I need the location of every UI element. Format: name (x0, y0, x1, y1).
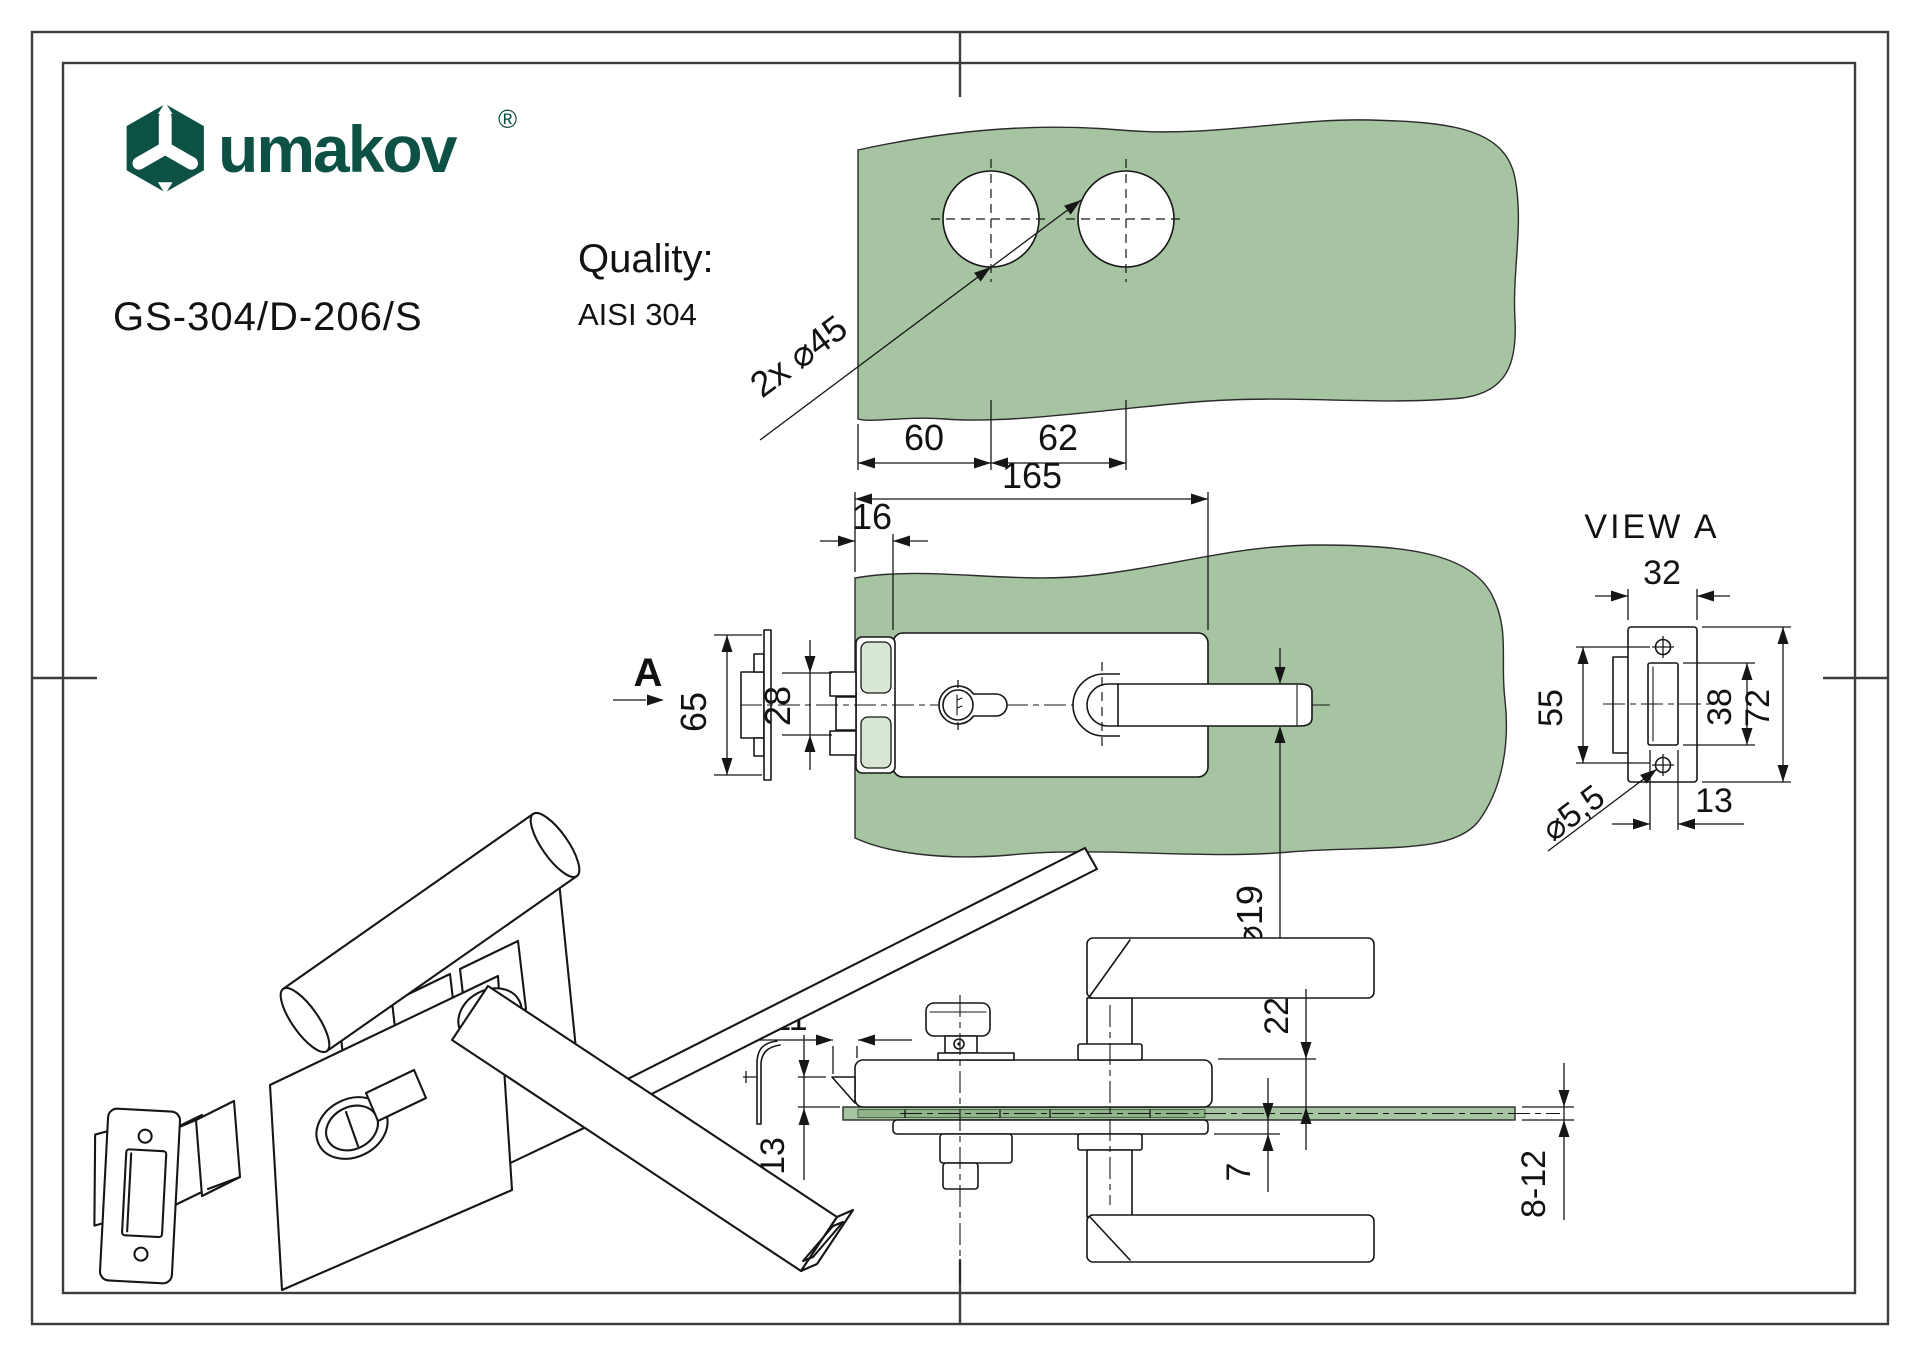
latch-wedge (832, 1077, 855, 1103)
dim-plate-below-glass: 7 (1220, 1163, 1258, 1182)
dim-strike-height: 65 (673, 692, 714, 732)
lock-cover-plate (893, 1120, 1208, 1134)
dim-glass-thickness: 8-12 (1515, 1150, 1553, 1218)
latch-tooth-bottom (830, 731, 856, 755)
top-view: 60 62 2x ⌀45 (742, 120, 1518, 470)
handle-bar-top (1087, 938, 1374, 998)
dim-plate-height: 72 (1739, 689, 1777, 727)
dim-screw-spacing: 55 (1532, 689, 1570, 727)
dim-body-above-glass: 22 (1258, 997, 1296, 1035)
front-view: 165 16 A 65 28 ⌀19 (613, 455, 1506, 990)
view-a: VIEW A 32 55 38 72 13 (1532, 508, 1791, 851)
glass-panel-top-view (858, 120, 1518, 420)
strike-tab (1613, 657, 1628, 753)
logo-registered-mark: ® (498, 104, 517, 134)
technical-drawing: umakov ® GS-304/D-206/S Quality: AISI 30… (0, 0, 1920, 1356)
dim-hole-offset: 60 (904, 417, 944, 458)
spring-clip (743, 1041, 780, 1124)
dim-latch-height: 28 (757, 686, 798, 726)
dim-slot-height: 38 (1701, 688, 1739, 726)
latch-mid (836, 697, 856, 730)
logo-mark-icon (127, 102, 204, 194)
view-direction-label: A (634, 651, 663, 695)
side-view: 11 13 22 7 8-12 (743, 938, 1574, 1285)
quality-label: Quality: (578, 237, 714, 281)
dim-holes-diameter: 2x ⌀45 (742, 307, 854, 406)
dim-clamp-inset: 16 (852, 496, 892, 537)
cylinder-lower (940, 1134, 1012, 1163)
handle-shaft (1118, 684, 1312, 726)
logo: umakov ® (127, 102, 518, 194)
dim-slot-width: 13 (1695, 782, 1733, 820)
logo-text: umakov (218, 112, 458, 186)
thumbturn-knob (926, 1003, 990, 1036)
lock-body-side (855, 1060, 1212, 1107)
dim-screw-hole-diameter: ⌀5,5 (1535, 778, 1612, 849)
handle-bar-bottom (1087, 1215, 1374, 1262)
product-code: GS-304/D-206/S (113, 295, 423, 339)
iso-strike-plate (88, 1108, 181, 1284)
latch-tooth-top (830, 672, 856, 696)
quality-value: AISI 304 (578, 297, 697, 332)
dim-hole-spacing: 62 (1038, 417, 1078, 458)
drawing-sheet: umakov ® GS-304/D-206/S Quality: AISI 30… (0, 0, 1920, 1356)
dim-plate-width: 32 (1643, 554, 1681, 592)
dim-total-length: 165 (1002, 455, 1062, 496)
view-a-title: VIEW A (1584, 508, 1719, 546)
